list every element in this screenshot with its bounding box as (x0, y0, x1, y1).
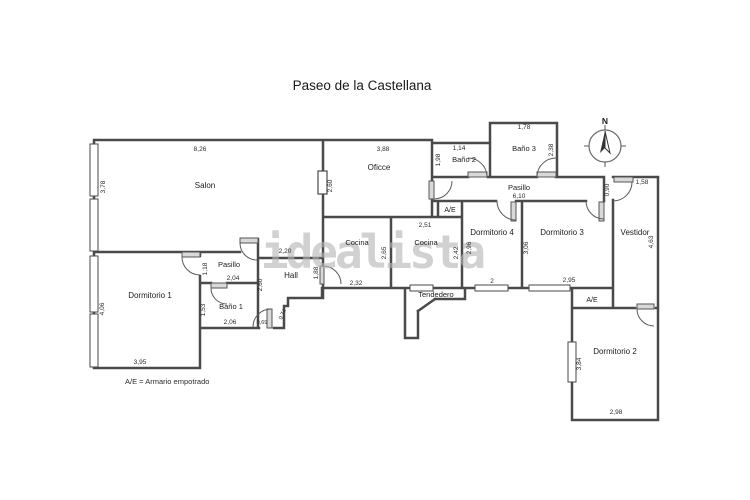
dormitorio4-door-icon (511, 202, 516, 221)
dim-hall-entry-side: 0,74 (278, 308, 288, 320)
closet-ae-label: A/E (444, 207, 456, 214)
dim-hall-right: 1,88 (313, 266, 320, 279)
compass-rose: N (584, 116, 626, 167)
floorplan-page: N idealista Paseo de la Castellana Salon… (0, 0, 750, 500)
room-label-pasillo2: Pasillo (218, 260, 240, 269)
room-label-bano1: Baño 1 (219, 302, 243, 311)
bano2-door-icon (468, 172, 487, 177)
compass-needle-icon (600, 131, 605, 153)
dim-hall-width: 2,20 (279, 248, 292, 255)
vestidor-door-icon (614, 177, 633, 182)
salon-window-icon (90, 144, 98, 196)
dim-vestidor-height: 4,63 (648, 235, 655, 248)
dim-bano2-width: 1,14 (453, 145, 466, 152)
dim-dorm4-window: 2 (490, 278, 494, 285)
dormitorio3-window-icon (529, 285, 570, 291)
room-label-dormitorio2: Dormitorio 2 (593, 347, 637, 356)
room-label-oficce: Oficce (368, 163, 391, 172)
dim-dorm3-window: 2,95 (563, 277, 576, 284)
dim-salon-height: 3,78 (100, 180, 107, 193)
dim-dorm2-width: 2,98 (610, 409, 623, 416)
room-label-salon: Salon (195, 181, 215, 190)
dim-vestidor-width: 1,58 (636, 179, 649, 186)
room-label-tendedero: Tendedero (418, 290, 453, 299)
dim-oficce-width: 3,88 (377, 146, 390, 153)
dim-oficce-height: 2,60 (327, 179, 334, 192)
bano3-door-icon (537, 172, 556, 177)
salon-oficce-door-icon (318, 171, 327, 194)
dormitorio1-door-icon (182, 252, 200, 257)
dim-bano3-width: 1,78 (518, 124, 531, 131)
dim-dorm1-height: 4,06 (99, 302, 106, 315)
dim-pasillo2-width: 2,04 (227, 275, 240, 282)
page-title: Paseo de la Castellana (293, 78, 432, 93)
dormitorio2-door-icon (637, 304, 654, 309)
room-label-cocina-b: Cocina (414, 238, 438, 247)
dim-cocina-a-height: 2,65 (381, 246, 388, 259)
salon-pasillo-door-icon (240, 238, 258, 243)
dim-cocina-a-width: 2,32 (350, 280, 363, 287)
salon-window-icon (90, 199, 98, 251)
room-label-vestidor: Vestidor (621, 228, 650, 237)
dim-salon-width: 8,26 (194, 146, 207, 153)
dim-hall-left: 2,60 (257, 278, 264, 291)
room-label-hall: Hall (284, 271, 298, 280)
dim-dorm1-width: 3,95 (134, 359, 147, 366)
dormitorio1-window-icon (90, 256, 98, 312)
legend-armario-empotrado: A/E = Armario empotrado (125, 377, 209, 386)
pasillo-door-icon (429, 181, 434, 199)
dim-hall-entry-width: 0,69 (257, 320, 268, 326)
bano1-door-icon (211, 283, 227, 288)
dim-dorm2-height: 3,84 (576, 357, 583, 370)
dim-dorm3-height: 3,06 (523, 241, 530, 254)
room-label-dormitorio4: Dormitorio 4 (470, 228, 514, 237)
dim-bano2-height: 1,98 (435, 153, 442, 166)
dim-pasillo-end: 0,90 (604, 183, 611, 196)
room-label-dormitorio1: Dormitorio 1 (128, 291, 172, 300)
room-label-bano3: Baño 3 (512, 144, 536, 153)
floorplan-canvas: N idealista Paseo de la Castellana Salon… (0, 0, 750, 500)
closet-ae-label: A/E (586, 297, 598, 304)
compass-north-label: N (602, 116, 608, 126)
room-label-bano2: Baño 2 (452, 155, 476, 164)
dim-pasillo-length: 6,10 (513, 193, 526, 200)
dormitorio4-window-icon (475, 285, 508, 291)
room-label-dormitorio3: Dormitorio 3 (540, 228, 584, 237)
room-label-cocina-a: Cocina (345, 238, 369, 247)
dormitorio2-window-icon (568, 342, 576, 382)
room-label-pasillo: Pasillo (508, 183, 530, 192)
dim-pasillo2-door: 1,18 (202, 262, 209, 275)
dormitorio1-window-icon (90, 314, 98, 367)
dim-bano3-height: 2,38 (548, 143, 555, 156)
dim-bano1-height: 1,53 (200, 303, 207, 316)
entrance-door-icon (267, 309, 272, 328)
dim-cocina-b-width: 2,51 (419, 222, 432, 229)
dim-bano1-width: 2,06 (224, 319, 237, 326)
dim-dorm4-height: 2,96 (466, 241, 473, 254)
dim-cocina-b-height: 2,42 (453, 246, 460, 259)
